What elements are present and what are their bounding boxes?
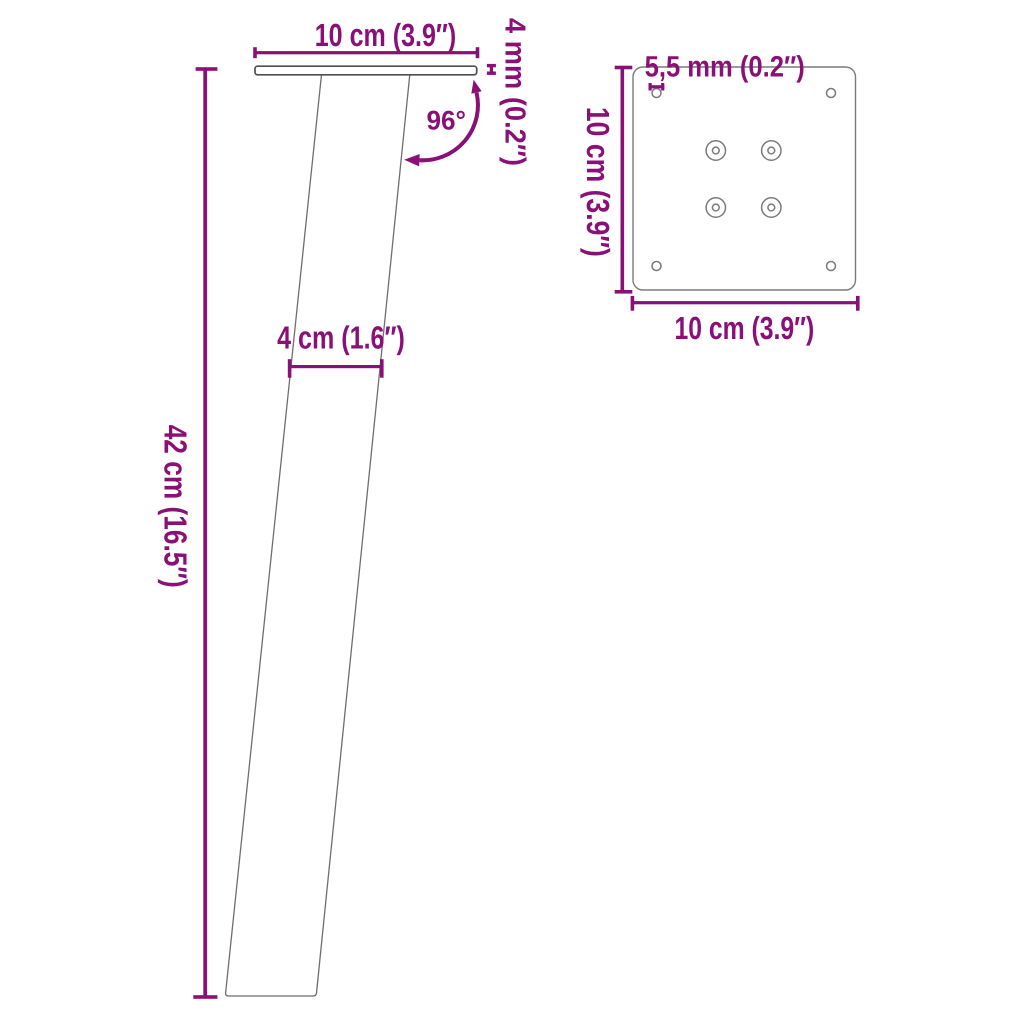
svg-text:10 cm (3.9″): 10 cm (3.9″) xyxy=(315,17,457,53)
svg-text:5,5 mm (0.2″): 5,5 mm (0.2″) xyxy=(645,50,805,83)
svg-text:10 cm (3.9″): 10 cm (3.9″) xyxy=(675,310,815,346)
svg-text:10 cm (3.9″): 10 cm (3.9″) xyxy=(580,107,616,257)
svg-text:42 cm (16.5″): 42 cm (16.5″) xyxy=(158,425,194,588)
svg-text:96°: 96° xyxy=(426,105,466,135)
svg-text:4 cm (1.6″): 4 cm (1.6″) xyxy=(277,320,405,356)
svg-text:4 mm (0.2″): 4 mm (0.2″) xyxy=(499,18,531,166)
